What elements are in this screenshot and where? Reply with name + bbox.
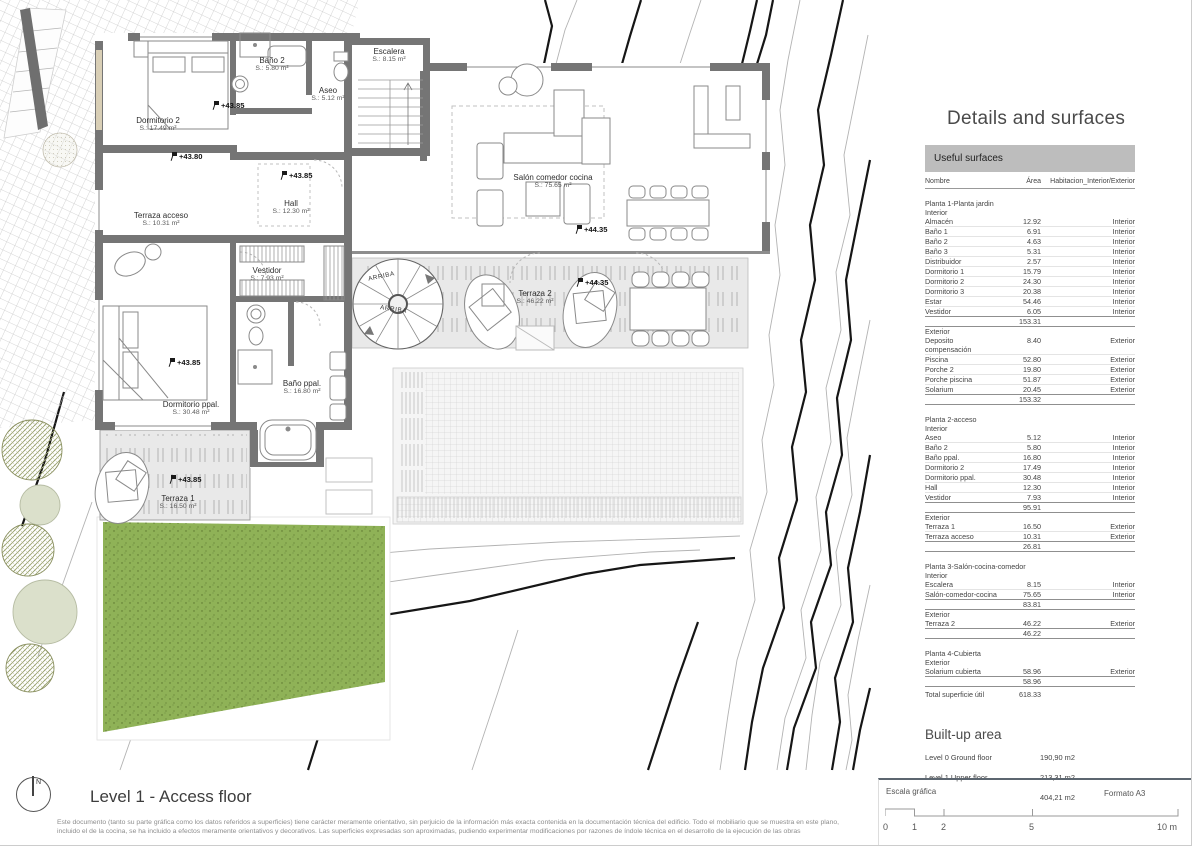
cell-area: 8.40 — [999, 336, 1041, 354]
item — [1041, 503, 1135, 512]
floor-plan-svg — [0, 0, 880, 775]
cell-area: 52.80 — [999, 355, 1041, 364]
cell-tipo: Exterior — [1041, 365, 1135, 374]
grass-area — [97, 517, 390, 740]
cell-nombre: Terraza 1 — [925, 522, 999, 531]
cell-nombre: Dormitorio 2 — [925, 277, 999, 286]
cell-area: 20.45 — [999, 385, 1041, 394]
table-row: Piscina52.80Exterior — [925, 355, 1135, 365]
cell-tipo: Interior — [1041, 217, 1135, 226]
table-row: Dormitorio 217.49Interior — [925, 463, 1135, 473]
group-label: Interior — [925, 208, 1135, 217]
item — [1041, 600, 1135, 609]
item — [925, 542, 999, 551]
scale-tick-0: 0 — [883, 822, 888, 832]
col-habitacion: Habitacion_Interior/Exterior — [1041, 178, 1135, 185]
item — [1041, 677, 1135, 686]
subtotal-row: 153.32 — [925, 395, 1135, 405]
cell-nombre: Dormitorio 3 — [925, 287, 999, 296]
table-row: Dormitorio 320.38Interior — [925, 287, 1135, 297]
cell-tipo: Interior — [1041, 267, 1135, 276]
item — [925, 629, 999, 638]
table-row: Dormitorio 224.30Interior — [925, 277, 1135, 287]
item — [1041, 317, 1135, 326]
cell-nombre: Baño ppal. — [925, 453, 999, 462]
subtotal-row: 83.81 — [925, 600, 1135, 610]
group-label: Exterior — [925, 327, 1135, 336]
scale-tick-2: 2 — [941, 822, 946, 832]
subtotal-row: 95.91 — [925, 503, 1135, 513]
table-row: Baño 25.80Interior — [925, 443, 1135, 453]
cell-area: 6.91 — [999, 227, 1041, 236]
cell-tipo: Interior — [1041, 433, 1135, 442]
table-column-headers: Nombre Área Habitacion_Interior/Exterior — [925, 172, 1135, 189]
cell-tipo: Interior — [1041, 483, 1135, 492]
disclaimer-text: Este documento (tanto su parte gráfica c… — [57, 819, 839, 836]
section-title: Planta 3-Salón-cocina-comedor — [925, 562, 1135, 571]
cell-tipo: Interior — [1041, 580, 1135, 589]
cell-tipo: Interior — [1041, 257, 1135, 266]
cell-nombre: Dormitorio 2 — [925, 463, 999, 472]
cell-area: 30.48 — [999, 473, 1041, 482]
cell-tipo: Exterior — [1041, 375, 1135, 384]
item — [925, 317, 999, 326]
panel-title: Details and surfaces — [947, 108, 1135, 130]
cell-nombre: Terraza acceso — [925, 532, 999, 541]
table-row: Deposito compensación8.40Exterior — [925, 336, 1135, 355]
cell-nombre: Almacén — [925, 217, 999, 226]
sheet-border-right — [1191, 0, 1192, 846]
table-row: Vestidor6.05Interior — [925, 307, 1135, 317]
section-title: Planta 1-Planta jardin — [925, 199, 1135, 208]
table-row: Dormitorio ppal.30.48Interior — [925, 473, 1135, 483]
item — [925, 600, 999, 609]
cell-tipo: Exterior — [1041, 385, 1135, 394]
cell-tipo: Interior — [1041, 227, 1135, 236]
subtotal-row: 46.22 — [925, 629, 1135, 639]
table-row: Porche 219.80Exterior — [925, 365, 1135, 375]
cell-tipo: Interior — [1041, 590, 1135, 599]
cell-area: 12.30 — [999, 483, 1041, 492]
cell-nombre: Porche 2 — [925, 365, 999, 374]
cell-tipo: Interior — [1041, 473, 1135, 482]
item — [925, 395, 999, 404]
cell-nombre: Aseo — [925, 433, 999, 442]
cell-nombre: Dormitorio 1 — [925, 267, 999, 276]
table-row: Hall12.30Interior — [925, 483, 1135, 493]
cell-tipo: Exterior — [1041, 619, 1135, 628]
cell-area: 75.65 — [999, 590, 1041, 599]
cell-area: 6.05 — [999, 307, 1041, 316]
cell-nombre: Vestidor — [925, 307, 999, 316]
cell-area: 7.93 — [999, 493, 1041, 502]
cell-area: 20.38 — [999, 287, 1041, 296]
subtotal-value: 46.22 — [999, 629, 1041, 638]
cell-tipo: Exterior — [1041, 667, 1135, 676]
north-compass-icon: N — [16, 777, 51, 812]
cell-tipo: Interior — [1041, 453, 1135, 462]
cell-tipo: Exterior — [1041, 522, 1135, 531]
cell-nombre: Solarium — [925, 385, 999, 394]
useful-surfaces-label: Useful surfaces — [934, 153, 1003, 164]
subtotal-row: 26.81 — [925, 542, 1135, 552]
cell-tipo: Interior — [1041, 287, 1135, 296]
item — [1041, 629, 1135, 638]
useful-surfaces-band: Useful surfaces — [925, 145, 1135, 172]
bu-label: Level 0 Ground floor — [925, 753, 1040, 762]
cell-nombre: Baño 1 — [925, 227, 999, 236]
total-label: Total superficie útil — [925, 690, 999, 699]
scale-tick-3: 5 — [1029, 822, 1034, 832]
compass-needle — [32, 776, 34, 796]
subtotal-value: 26.81 — [999, 542, 1041, 551]
cell-nombre: Baño 3 — [925, 247, 999, 256]
cell-nombre: Piscina — [925, 355, 999, 364]
cell-area: 5.12 — [999, 433, 1041, 442]
table-row: Estar54.46Interior — [925, 297, 1135, 307]
scale-bar — [885, 806, 1181, 818]
cell-tipo: Interior — [1041, 463, 1135, 472]
trees — [2, 420, 77, 692]
group-label: Exterior — [925, 513, 1135, 522]
cell-tipo: Interior — [1041, 307, 1135, 316]
subtotal-value: 83.81 — [999, 600, 1041, 609]
table-row: Dormitorio 115.79Interior — [925, 267, 1135, 277]
cell-tipo: Interior — [1041, 297, 1135, 306]
total-row: Total superficie útil 618.33 — [925, 690, 1135, 699]
subtotal-value: 153.32 — [999, 395, 1041, 404]
drawing-sheet: EscaleraS.: 8.15 m²Baño 2S.: 5.80 m²Aseo… — [0, 0, 1200, 848]
pool-deck — [393, 368, 743, 524]
format-label: Formato A3 — [1104, 789, 1145, 798]
group-label: Exterior — [925, 658, 1135, 667]
table-row: Baño 35.31Interior — [925, 247, 1135, 257]
spiral-stair — [353, 259, 443, 349]
table-row: Porche piscina51.87Exterior — [925, 375, 1135, 385]
cell-tipo: Exterior — [1041, 532, 1135, 541]
item — [1041, 395, 1135, 404]
cell-area: 54.46 — [999, 297, 1041, 306]
cell-nombre: Solarium cubierta — [925, 667, 999, 676]
cell-area: 15.79 — [999, 267, 1041, 276]
table-row: Almacén12.92Interior — [925, 217, 1135, 227]
cell-area: 2.57 — [999, 257, 1041, 266]
cell-area: 24.30 — [999, 277, 1041, 286]
total-value: 618.33 — [999, 690, 1041, 699]
scale-label: Escala gráfica — [886, 787, 936, 796]
bu-value: 190,90 m2 — [1040, 753, 1135, 762]
scale-tick-1: 1 — [912, 822, 917, 832]
table-row: Terraza 246.22Exterior — [925, 619, 1135, 629]
surfaces-table-body: Planta 1-Planta jardinInteriorAlmacén12.… — [925, 199, 1135, 687]
cell-area: 8.15 — [999, 580, 1041, 589]
cell-nombre: Escalera — [925, 580, 999, 589]
floor-plan: EscaleraS.: 8.15 m²Baño 2S.: 5.80 m²Aseo… — [0, 0, 880, 775]
cell-nombre: Vestidor — [925, 493, 999, 502]
subtotal-value: 95.91 — [999, 503, 1041, 512]
cell-area: 51.87 — [999, 375, 1041, 384]
cell-tipo: Interior — [1041, 247, 1135, 256]
table-row: Distribuidor2.57Interior — [925, 257, 1135, 267]
scale-tick-last: 10 m — [1157, 822, 1177, 832]
table-row: Solarium20.45Exterior — [925, 385, 1135, 395]
details-panel: Details and surfaces Useful surfaces Nom… — [925, 0, 1135, 802]
built-up-title: Built-up area — [925, 727, 1135, 742]
cell-area: 5.31 — [999, 247, 1041, 256]
group-label: Exterior — [925, 610, 1135, 619]
item — [925, 677, 999, 686]
item — [1041, 542, 1135, 551]
table-row: Solarium cubierta58.96Exterior — [925, 667, 1135, 677]
cell-area: 5.80 — [999, 443, 1041, 452]
section-title: Planta 4-Cubierta — [925, 649, 1135, 658]
cell-nombre: Dormitorio ppal. — [925, 473, 999, 482]
subtotal-value: 153.31 — [999, 317, 1041, 326]
section-title: Planta 2-acceso — [925, 415, 1135, 424]
cell-area: 12.92 — [999, 217, 1041, 226]
built-up-row: Level 0 Ground floor190,90 m2 — [925, 753, 1135, 762]
cell-nombre: Salón-comedor-cocina — [925, 590, 999, 599]
table-row: Vestidor7.93Interior — [925, 493, 1135, 503]
cell-tipo: Exterior — [1041, 336, 1135, 354]
cell-nombre: Terraza 2 — [925, 619, 999, 628]
cell-nombre: Porche piscina — [925, 375, 999, 384]
plan-title: Level 1 - Access floor — [90, 787, 252, 807]
cell-nombre: Hall — [925, 483, 999, 492]
col-nombre: Nombre — [925, 178, 999, 185]
table-row: Baño ppal.16.80Interior — [925, 453, 1135, 463]
table-row: Baño 24.63Interior — [925, 237, 1135, 247]
cell-area: 58.96 — [999, 667, 1041, 676]
sheet-border-bottom — [0, 845, 1192, 846]
group-label: Interior — [925, 571, 1135, 580]
table-row: Salón-comedor-cocina75.65Interior — [925, 590, 1135, 600]
cell-tipo: Interior — [1041, 237, 1135, 246]
table-row: Escalera8.15Interior — [925, 580, 1135, 590]
col-area: Área — [999, 178, 1041, 185]
cell-tipo: Interior — [1041, 493, 1135, 502]
cell-area: 16.80 — [999, 453, 1041, 462]
cell-tipo: Interior — [1041, 277, 1135, 286]
table-row: Terraza acceso10.31Exterior — [925, 532, 1135, 542]
cell-area: 10.31 — [999, 532, 1041, 541]
cell-area: 46.22 — [999, 619, 1041, 628]
cell-area: 19.80 — [999, 365, 1041, 374]
scale-block: Escala gráfica Formato A3 0 1 2 5 10 m — [878, 778, 1191, 845]
cell-nombre: Distribuidor — [925, 257, 999, 266]
subtotal-row: 153.31 — [925, 317, 1135, 327]
item — [925, 503, 999, 512]
table-row: Aseo5.12Interior — [925, 433, 1135, 443]
cell-tipo: Interior — [1041, 443, 1135, 452]
cell-nombre: Estar — [925, 297, 999, 306]
table-row: Baño 16.91Interior — [925, 227, 1135, 237]
cell-area: 4.63 — [999, 237, 1041, 246]
cell-nombre: Baño 2 — [925, 237, 999, 246]
group-label: Interior — [925, 424, 1135, 433]
cell-nombre: Baño 2 — [925, 443, 999, 452]
table-row: Terraza 116.50Exterior — [925, 522, 1135, 532]
subtotal-value: 58.96 — [999, 677, 1041, 686]
cell-tipo: Exterior — [1041, 355, 1135, 364]
subtotal-row: 58.96 — [925, 677, 1135, 687]
cell-nombre: Deposito compensación — [925, 336, 999, 354]
compass-north-letter: N — [36, 779, 41, 786]
cell-area: 17.49 — [999, 463, 1041, 472]
cell-area: 16.50 — [999, 522, 1041, 531]
